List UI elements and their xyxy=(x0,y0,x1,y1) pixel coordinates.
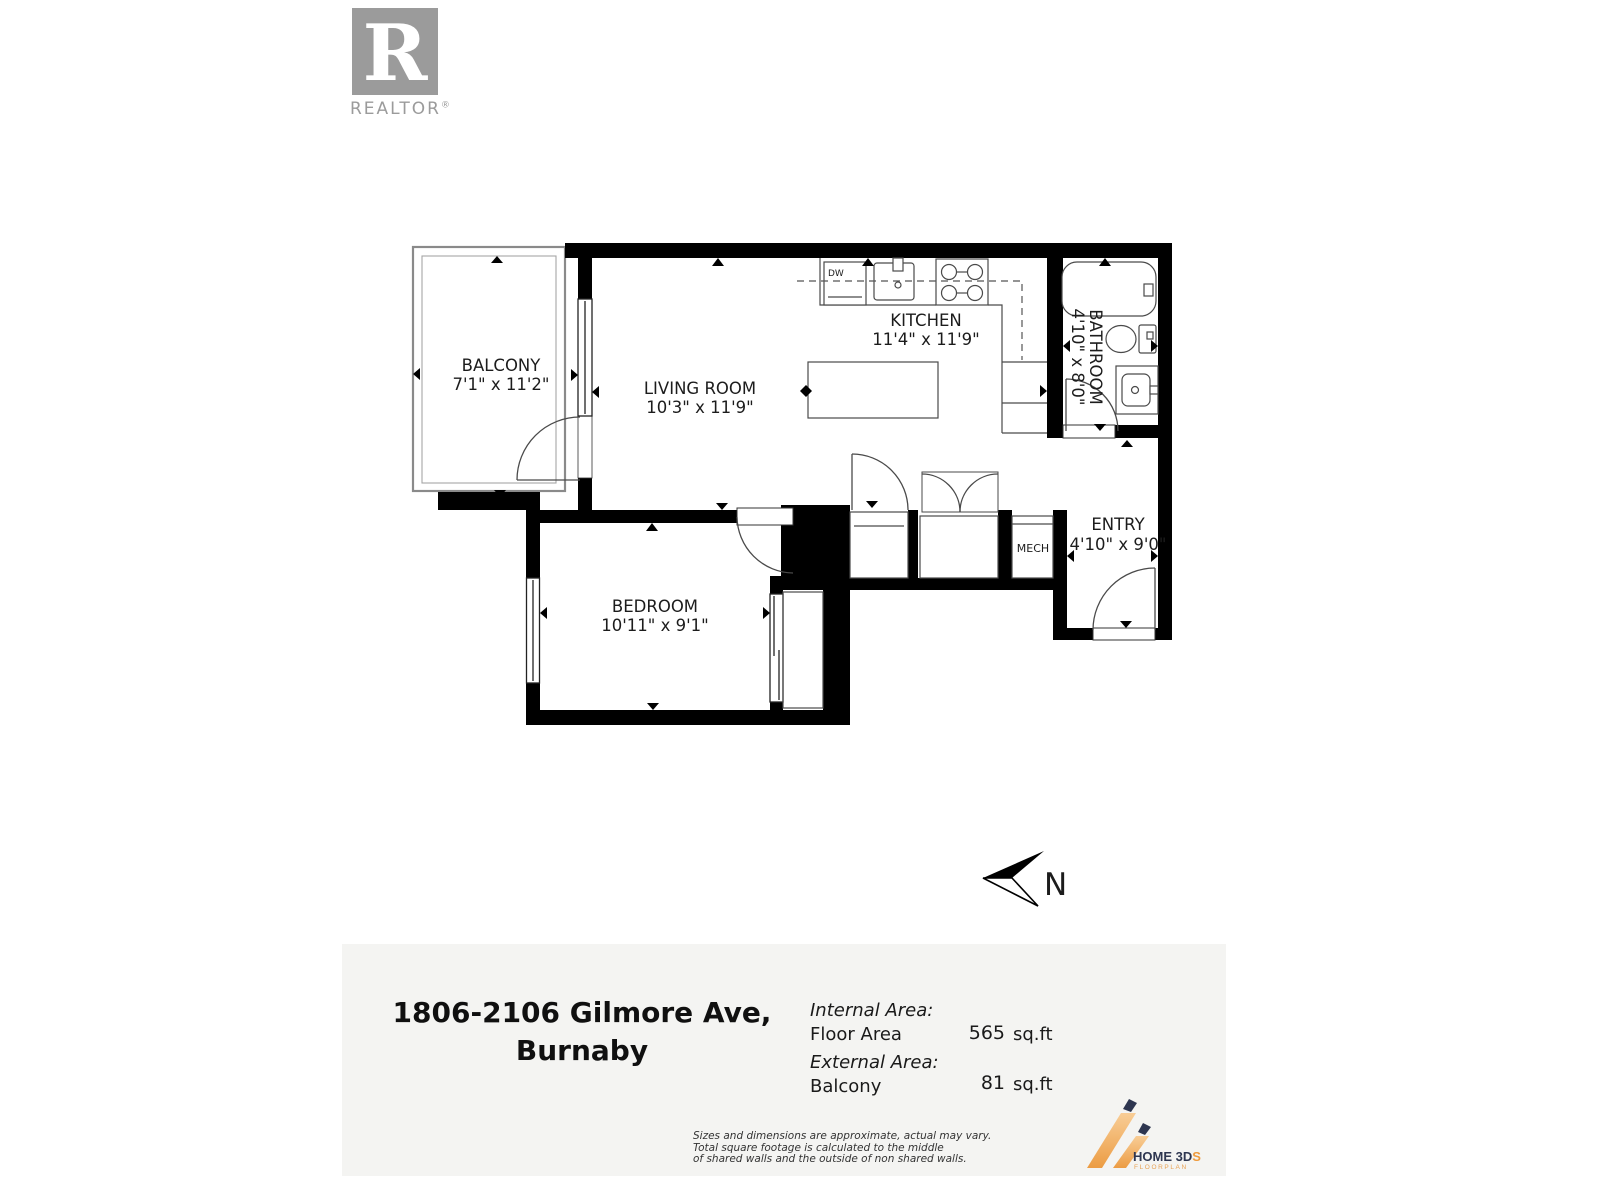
balcony-dims: 7'1" x 11'2" xyxy=(453,375,550,394)
kitchen-label: KITCHEN xyxy=(890,311,962,330)
floor-area-value: 565 xyxy=(930,1022,1005,1044)
closet-a-box xyxy=(850,512,908,578)
entry-dims: 4'10" x 9'0" xyxy=(1070,535,1167,554)
entry-label: ENTRY xyxy=(1091,515,1145,534)
north-letter: N xyxy=(1044,867,1067,903)
internal-area-label: Internal Area: xyxy=(810,1000,933,1021)
home3ds-logo: HOME 3DS FLOORPLAN xyxy=(1075,1095,1225,1177)
balcony-window xyxy=(578,299,592,416)
balcony-door xyxy=(517,417,580,480)
footer-panel: 1806-2106 Gilmore Ave, Burnaby Internal … xyxy=(342,944,1226,1176)
kitchen-dims: 11'4" x 11'9" xyxy=(872,330,980,349)
home3ds-logo-name: HOME 3DS xyxy=(1133,1149,1201,1164)
entry-door xyxy=(1093,568,1155,630)
balcony-area-value: 81 xyxy=(930,1072,1005,1094)
living-room-dims: 10'3" x 11'9" xyxy=(646,398,754,417)
bathroom-label: BATHROOM xyxy=(1086,309,1105,405)
home3ds-logo-tagline: FLOORPLAN xyxy=(1134,1164,1188,1171)
bedroom-closet-alcove xyxy=(783,592,823,708)
address-line1: 1806-2106 Gilmore Ave, xyxy=(382,994,782,1032)
dishwasher-label: DW xyxy=(828,269,844,279)
closet-b-double-doors xyxy=(922,472,998,512)
disclaimer-text: Sizes and dimensions are approximate, ac… xyxy=(693,1131,1093,1166)
floor-area-unit: sq.ft xyxy=(1013,1024,1053,1045)
balcony-area-label: Balcony xyxy=(810,1076,881,1097)
toilet-icon xyxy=(1106,325,1156,353)
floor-area-label: Floor Area xyxy=(810,1024,902,1045)
bathroom-dims: 4'10" x 8'0" xyxy=(1068,309,1087,406)
balcony-label: BALCONY xyxy=(462,356,542,375)
closet-b-box xyxy=(920,516,998,578)
wall-segments xyxy=(438,243,1172,725)
address-line2: Burnaby xyxy=(382,1032,782,1070)
north-arrow-icon: N xyxy=(983,851,1067,906)
bedroom-label: BEDROOM xyxy=(612,597,698,616)
disclaimer-line3: of shared walls and the outside of non s… xyxy=(693,1154,1093,1166)
closet-a-door xyxy=(852,454,908,510)
kitchen-sink-icon xyxy=(874,258,914,300)
home3ds-logo-accent-letter: S xyxy=(1192,1149,1201,1164)
external-area-label: External Area: xyxy=(810,1052,939,1073)
balcony-area-unit: sq.ft xyxy=(1013,1074,1053,1095)
bedroom-dims: 10'11" x 9'1" xyxy=(601,616,709,635)
bedroom-window xyxy=(527,578,540,683)
property-address: 1806-2106 Gilmore Ave, Burnaby xyxy=(382,994,782,1070)
bedroom-closet-slider xyxy=(770,594,783,702)
disclaimer-line1: Sizes and dimensions are approximate, ac… xyxy=(693,1131,1093,1143)
bathroom-sink-icon xyxy=(1116,366,1158,414)
living-room-label: LIVING ROOM xyxy=(644,379,756,398)
stove-icon xyxy=(936,259,988,305)
mech-label: MECH xyxy=(1017,542,1049,555)
kitchen-island xyxy=(808,362,938,418)
